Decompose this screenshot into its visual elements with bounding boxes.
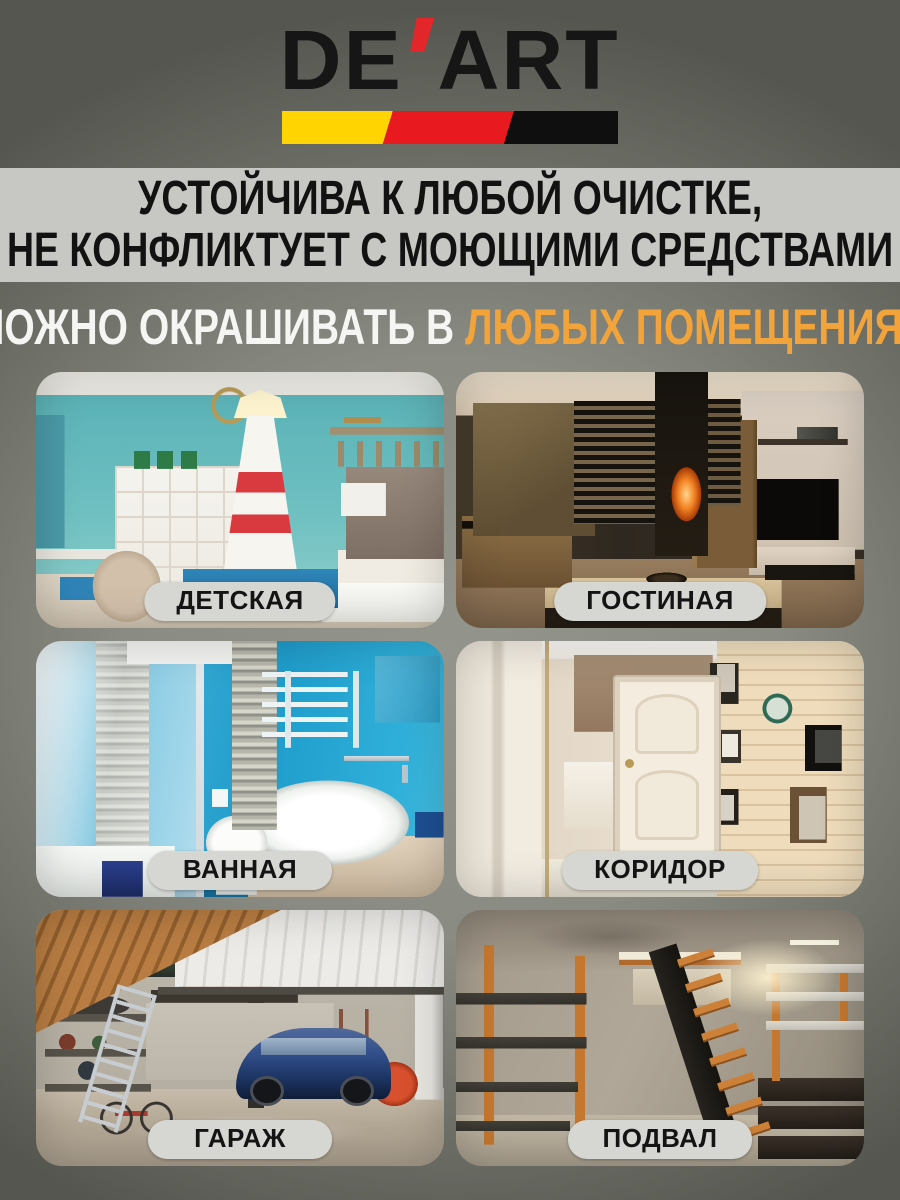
room-photo-corridor: КОРИДОР: [456, 641, 864, 897]
claim-line-1: УСТОЙЧИВА К ЛЮБОЙ ОЧИСТКЕ,: [138, 173, 762, 225]
brand-logo-art: ART: [438, 13, 620, 107]
room-label-garage: ГАРАЖ: [148, 1120, 332, 1159]
claims-banner: УСТОЙЧИВА К ЛЮБОЙ ОЧИСТКЕ, НЕ КОНФЛИКТУЕ…: [0, 168, 900, 282]
garage-wood-ceiling: [36, 910, 281, 1033]
room-label-corridor: КОРИДОР: [562, 851, 758, 890]
room-photo-garage: ГАРАЖ: [36, 910, 444, 1166]
headline-prefix: МОЖНО ОКРАШИВАТЬ В: [0, 299, 454, 355]
german-flag-stripe: [282, 111, 618, 144]
apostrophe-icon: [410, 18, 434, 52]
room-label-kids: ДЕТСКАЯ: [144, 582, 335, 621]
room-label-living: ГОСТИНАЯ: [554, 582, 766, 621]
room-label-basement: ПОДВАЛ: [568, 1120, 752, 1159]
lighthouse: [224, 416, 297, 572]
garage-car: [236, 1028, 391, 1100]
lighthouse-lamp: [234, 390, 287, 418]
room-photo-bathroom: ВАННАЯ: [36, 641, 444, 897]
headline-text: МОЖНО ОКРАШИВАТЬ ВЛЮБЫХ ПОМЕЩЕНИЯХ: [0, 298, 900, 356]
room-photo-living: ГОСТИНАЯ: [456, 372, 864, 628]
headline: МОЖНО ОКРАШИВАТЬ ВЛЮБЫХ ПОМЕЩЕНИЯХ: [0, 282, 900, 372]
brand-logo-de: DE: [280, 13, 403, 107]
brand-logo-text: DEART: [280, 18, 620, 102]
rooms-grid: ДЕТСКАЯ ГОСТИНАЯ ВАННАЯ КОРИДОР ГАРАЖ ПО…: [36, 372, 864, 1166]
headline-highlight: ЛЮБЫХ ПОМЕЩЕНИЯХ: [465, 299, 900, 355]
brand-logo: DEART: [0, 18, 900, 144]
claim-line-2: НЕ КОНФЛИКТУЕТ С МОЮЩИМИ СРЕДСТВАМИ: [7, 225, 893, 277]
promo-infographic: DEART УСТОЙЧИВА К ЛЮБОЙ ОЧИСТКЕ, НЕ КОНФ…: [0, 0, 900, 1200]
room-photo-basement: ПОДВАЛ: [456, 910, 864, 1166]
room-photo-kids: ДЕТСКАЯ: [36, 372, 444, 628]
room-label-bathroom: ВАННАЯ: [148, 851, 332, 890]
garage-ladder: [78, 984, 157, 1133]
